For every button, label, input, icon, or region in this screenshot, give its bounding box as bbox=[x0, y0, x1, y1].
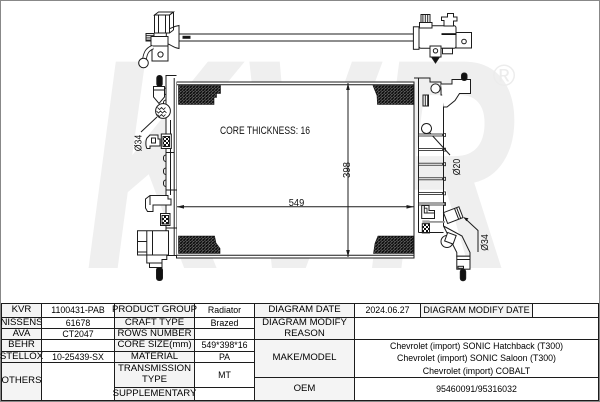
svg-text:Ø34: Ø34 bbox=[479, 234, 491, 251]
svg-text:Ø20: Ø20 bbox=[451, 159, 463, 176]
svg-text:®: ® bbox=[493, 58, 516, 93]
svg-text:CORE THICKNESS: 16: CORE THICKNESS: 16 bbox=[220, 125, 310, 137]
svg-text:398: 398 bbox=[341, 162, 353, 178]
svg-text:549: 549 bbox=[289, 197, 305, 209]
svg-text:Ø34: Ø34 bbox=[133, 135, 145, 152]
